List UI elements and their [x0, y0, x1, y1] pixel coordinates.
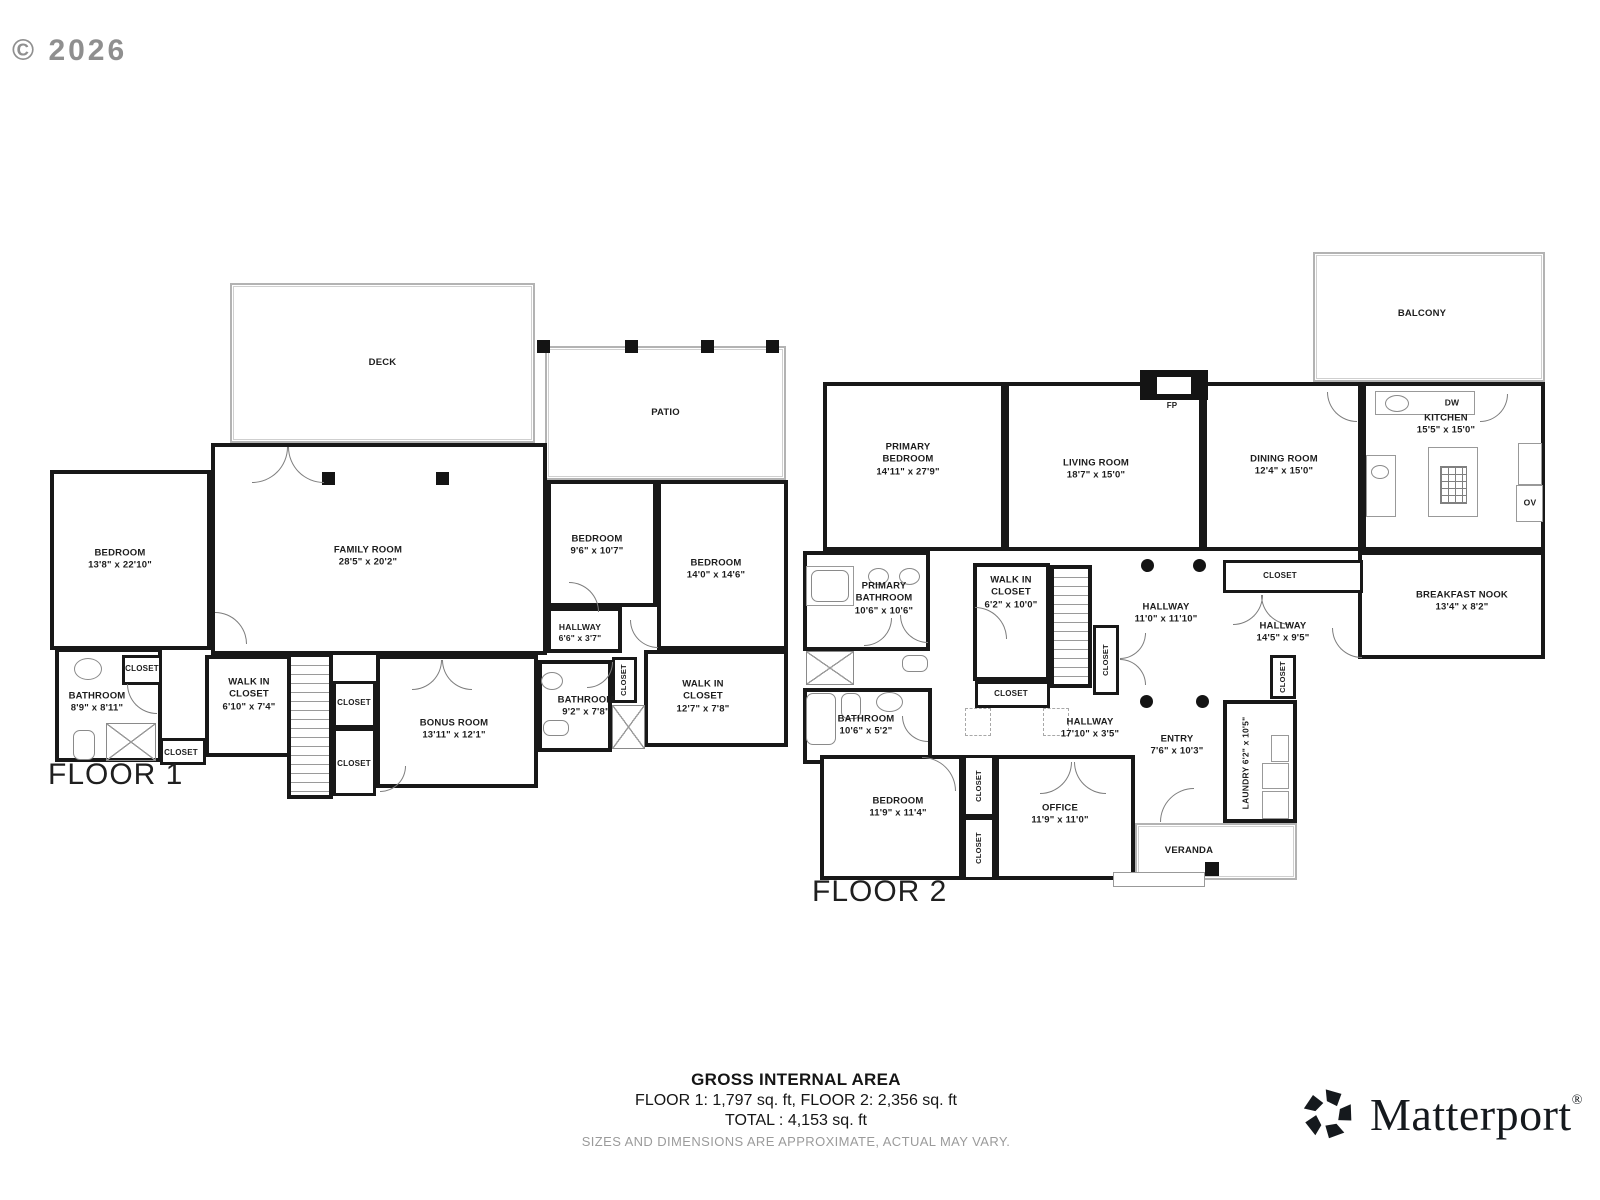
office-label: OFFICE11'9" x 11'0"	[1031, 803, 1088, 828]
sink-fixture	[541, 672, 563, 690]
closet-f1-c-name: CLOSET	[337, 698, 371, 708]
hallway-f2-a-label: HALLWAY11'0" x 11'10"	[1135, 602, 1198, 627]
closet-f2-f-label: CLOSET	[994, 689, 1028, 699]
door-swing-arc	[1120, 633, 1146, 659]
closet-f1-a-label: CLOSET	[125, 664, 159, 674]
floor-1-label: FLOOR 1	[48, 758, 183, 792]
bedroom-4-dimensions: 11'9" x 11'4"	[869, 808, 926, 820]
kitchen-name: KITCHEN	[1417, 413, 1475, 425]
cooktop	[1440, 466, 1467, 504]
hallway-f1-dimensions: 6'6" x 3'7"	[559, 633, 602, 644]
primary-bathroom-name: PRIMARY BATHROOM	[855, 580, 913, 605]
fireplace-insert	[1157, 377, 1191, 394]
sink-fixture	[1371, 465, 1389, 479]
laundry-label: LAUNDRY 6'2" x 10'5"	[1240, 717, 1251, 810]
family-room-label: FAMILY ROOM28'5" x 20'2"	[334, 545, 402, 570]
tub-fixture	[806, 693, 836, 745]
closet-f2-i-name: CLOSET	[1278, 661, 1288, 693]
veranda-name: VERANDA	[1165, 845, 1213, 857]
summary-disclaimer: SIZES AND DIMENSIONS ARE APPROXIMATE, AC…	[582, 1134, 1011, 1149]
tub-fixture	[543, 720, 569, 736]
post	[625, 340, 638, 353]
kitchen-label: KITCHEN15'5" x 15'0"	[1417, 413, 1475, 438]
walkin-closet-f2-dimensions: 6'2" x 10'0"	[985, 599, 1038, 611]
post	[537, 340, 550, 353]
hallway-f2-b-dimensions: 14'5" x 9'5"	[1257, 633, 1310, 645]
room-stairs-f1	[287, 653, 333, 799]
walkin-closet-f2-label: WALK IN CLOSET6'2" x 10'0"	[985, 574, 1038, 611]
bedroom-1-dimensions: 13'8" x 22'10"	[88, 560, 152, 572]
registered-mark: ®	[1572, 1093, 1583, 1108]
tub-fixture	[902, 655, 928, 672]
closet-f2-k-name: CLOSET	[974, 832, 984, 864]
hallway-f2-c-dimensions: 17'10" x 3'5"	[1061, 729, 1119, 741]
office-name: OFFICE	[1031, 803, 1088, 815]
post	[766, 340, 779, 353]
patio-label: PATIO	[651, 407, 680, 419]
skylight-dashed	[965, 708, 991, 736]
dining-room-name: DINING ROOM	[1250, 454, 1318, 466]
hallway-f2-b-label: HALLWAY14'5" x 9'5"	[1257, 621, 1310, 646]
hallway-f1-label: HALLWAY6'6" x 3'7"	[559, 622, 602, 644]
walkin-closet-f1-a-dimensions: 6'10" x 7'4"	[223, 701, 276, 713]
closet-f1-e-label: CLOSET	[619, 664, 629, 696]
bedroom-1-label: BEDROOM13'8" x 22'10"	[88, 548, 152, 573]
tub-fixture	[811, 570, 849, 602]
door-swing-arc	[1120, 659, 1146, 685]
bonus-room-name: BONUS ROOM	[420, 718, 489, 730]
bathroom-3-name: BATHROOM	[838, 714, 895, 726]
closet-f2-h-name: CLOSET	[1263, 571, 1297, 581]
fixture-box	[1518, 443, 1542, 485]
bedroom-2-label: BEDROOM9'6" x 10'7"	[571, 534, 624, 559]
column	[1193, 559, 1206, 572]
hallway-f2-c-label: HALLWAY17'10" x 3'5"	[1061, 717, 1119, 742]
hallway-f2-c-name: HALLWAY	[1061, 717, 1119, 729]
entry-name: ENTRY	[1151, 734, 1204, 746]
closet-f1-b-label: CLOSET	[164, 748, 198, 758]
walkin-closet-f1-b-name: WALK IN CLOSET	[677, 678, 730, 703]
bedroom-4-name: BEDROOM	[869, 796, 926, 808]
sink-fixture	[876, 692, 903, 712]
hallway-f2-a-name: HALLWAY	[1135, 602, 1198, 614]
laundry-name: LAUNDRY 6'2" x 10'5"	[1240, 717, 1251, 810]
column	[1141, 559, 1154, 572]
walkin-closet-f2-name: WALK IN CLOSET	[985, 574, 1038, 599]
walkin-closet-f1-b-label: WALK IN CLOSET12'7" x 7'8"	[677, 678, 730, 715]
entry-label: ENTRY7'6" x 10'3"	[1151, 734, 1204, 759]
bathroom-2-name: BATHROOM	[558, 695, 615, 707]
hallway-f1-name: HALLWAY	[559, 622, 602, 633]
door-swing-arc	[630, 620, 658, 648]
summary-title: GROSS INTERNAL AREA	[582, 1070, 1011, 1090]
matterport-icon	[1300, 1086, 1356, 1142]
column	[1196, 695, 1209, 708]
breakfast-nook-dimensions: 13'4" x 8'2"	[1416, 602, 1508, 614]
primary-bathroom-label: PRIMARY BATHROOM10'6" x 10'6"	[855, 580, 913, 617]
post	[1205, 862, 1219, 876]
matterport-logo: Matterport®	[1300, 1086, 1583, 1142]
summary-floor-areas: FLOOR 1: 1,797 sq. ft, FLOOR 2: 2,356 sq…	[582, 1092, 1011, 1110]
bonus-room-label: BONUS ROOM13'11" x 12'1"	[420, 718, 489, 743]
copyright-text: © 2026	[12, 34, 127, 68]
balcony-name: BALCONY	[1398, 308, 1446, 320]
walkin-closet-f1-a-label: WALK IN CLOSET6'10" x 7'4"	[223, 676, 276, 713]
sink-fixture	[1385, 395, 1409, 412]
tub-fixture	[73, 730, 95, 760]
closet-f2-i-label: CLOSET	[1278, 661, 1288, 693]
closet-f2-k-label: CLOSET	[974, 832, 984, 864]
walkin-closet-f1-b-dimensions: 12'7" x 7'8"	[677, 703, 730, 715]
closet-f2-j-name: CLOSET	[974, 770, 984, 802]
living-room-label: LIVING ROOM18'7" x 15'0"	[1063, 458, 1129, 483]
post	[436, 472, 449, 485]
bathroom-1-label: BATHROOM8'9" x 8'11"	[69, 691, 126, 716]
breakfast-nook-name: BREAKFAST NOOK	[1416, 590, 1508, 602]
fp-label-label: FP	[1167, 401, 1178, 411]
bathroom-1-dimensions: 8'9" x 8'11"	[69, 703, 126, 715]
kitchen-dimensions: 15'5" x 15'0"	[1417, 425, 1475, 437]
closet-f1-e-name: CLOSET	[619, 664, 629, 696]
ov-label-name: OV	[1524, 497, 1537, 508]
primary-bedroom-label: PRIMARY BEDROOM14'11" x 27'9"	[876, 441, 939, 478]
fixture-box	[1262, 763, 1289, 789]
primary-bedroom-dimensions: 14'11" x 27'9"	[876, 466, 939, 478]
breakfast-nook-label: BREAKFAST NOOK13'4" x 8'2"	[1416, 590, 1508, 615]
bonus-room-dimensions: 13'11" x 12'1"	[420, 730, 489, 742]
closet-f2-j-label: CLOSET	[974, 770, 984, 802]
dw-label-name: DW	[1445, 397, 1460, 408]
closet-f2-g-name: CLOSET	[1101, 644, 1111, 676]
closet-f2-f-name: CLOSET	[994, 689, 1028, 699]
sink-fixture	[74, 658, 102, 680]
fixture-box	[1271, 735, 1289, 762]
bathroom-2-label: BATHROOM9'2" x 7'8"	[558, 695, 615, 720]
dw-label-label: DW	[1445, 397, 1460, 408]
closet-f1-c-label: CLOSET	[337, 698, 371, 708]
office-dimensions: 11'9" x 11'0"	[1031, 815, 1088, 827]
bedroom-2-dimensions: 9'6" x 10'7"	[571, 546, 624, 558]
deck-name: DECK	[369, 357, 397, 369]
room-stairs-f2	[1050, 565, 1092, 688]
bathroom-3-label: BATHROOM10'6" x 5'2"	[838, 714, 895, 739]
hallway-f2-b-name: HALLWAY	[1257, 621, 1310, 633]
closet-f2-h-label: CLOSET	[1263, 571, 1297, 581]
door-swing-arc	[380, 766, 406, 792]
living-room-name: LIVING ROOM	[1063, 458, 1129, 470]
primary-bedroom-name: PRIMARY BEDROOM	[876, 441, 939, 466]
hallway-f2-a-dimensions: 11'0" x 11'10"	[1135, 614, 1198, 626]
area-summary: GROSS INTERNAL AREA FLOOR 1: 1,797 sq. f…	[582, 1070, 1011, 1149]
bedroom-3-dimensions: 14'0" x 14'6"	[687, 570, 745, 582]
bedroom-1-name: BEDROOM	[88, 548, 152, 560]
ov-label-label: OV	[1524, 497, 1537, 508]
walkin-closet-f1-a-name: WALK IN CLOSET	[223, 676, 276, 701]
veranda-label: VERANDA	[1165, 845, 1213, 857]
dining-room-dimensions: 12'4" x 15'0"	[1250, 466, 1318, 478]
bathroom-2-dimensions: 9'2" x 7'8"	[558, 707, 615, 719]
family-room-name: FAMILY ROOM	[334, 545, 402, 557]
door-swing-arc	[1160, 788, 1194, 822]
living-room-dimensions: 18'7" x 15'0"	[1063, 470, 1129, 482]
primary-bathroom-dimensions: 10'6" x 10'6"	[855, 605, 913, 617]
fixture-box	[1113, 872, 1205, 887]
bedroom-3-name: BEDROOM	[687, 558, 745, 570]
dining-room-label: DINING ROOM12'4" x 15'0"	[1250, 454, 1318, 479]
closet-f1-d-label: CLOSET	[337, 759, 371, 769]
floor-2-label: FLOOR 2	[812, 875, 947, 909]
closet-f1-b-name: CLOSET	[164, 748, 198, 758]
family-room-dimensions: 28'5" x 20'2"	[334, 557, 402, 569]
shower-fixture	[106, 723, 156, 761]
fixture-box	[1262, 791, 1289, 819]
closet-f2-g-label: CLOSET	[1101, 644, 1111, 676]
bedroom-4-label: BEDROOM11'9" x 11'4"	[869, 796, 926, 821]
deck-label: DECK	[369, 357, 397, 369]
bathroom-3-dimensions: 10'6" x 5'2"	[838, 726, 895, 738]
floor-plan-canvas: © 2026 GROSS INTERNAL AREA FLOOR 1: 1,79…	[0, 0, 1600, 1200]
closet-f1-a-name: CLOSET	[125, 664, 159, 674]
shower-fixture	[612, 705, 645, 749]
fp-label-name: FP	[1167, 401, 1178, 411]
bedroom-3-label: BEDROOM14'0" x 14'6"	[687, 558, 745, 583]
entry-dimensions: 7'6" x 10'3"	[1151, 746, 1204, 758]
closet-f1-d-name: CLOSET	[337, 759, 371, 769]
balcony-label: BALCONY	[1398, 308, 1446, 320]
bedroom-2-name: BEDROOM	[571, 534, 624, 546]
column	[1140, 695, 1153, 708]
shower-fixture	[806, 651, 854, 685]
summary-total-area: TOTAL : 4,153 sq. ft	[582, 1112, 1011, 1130]
post	[701, 340, 714, 353]
brand-name: Matterport®	[1370, 1088, 1583, 1141]
patio-name: PATIO	[651, 407, 680, 419]
bathroom-1-name: BATHROOM	[69, 691, 126, 703]
